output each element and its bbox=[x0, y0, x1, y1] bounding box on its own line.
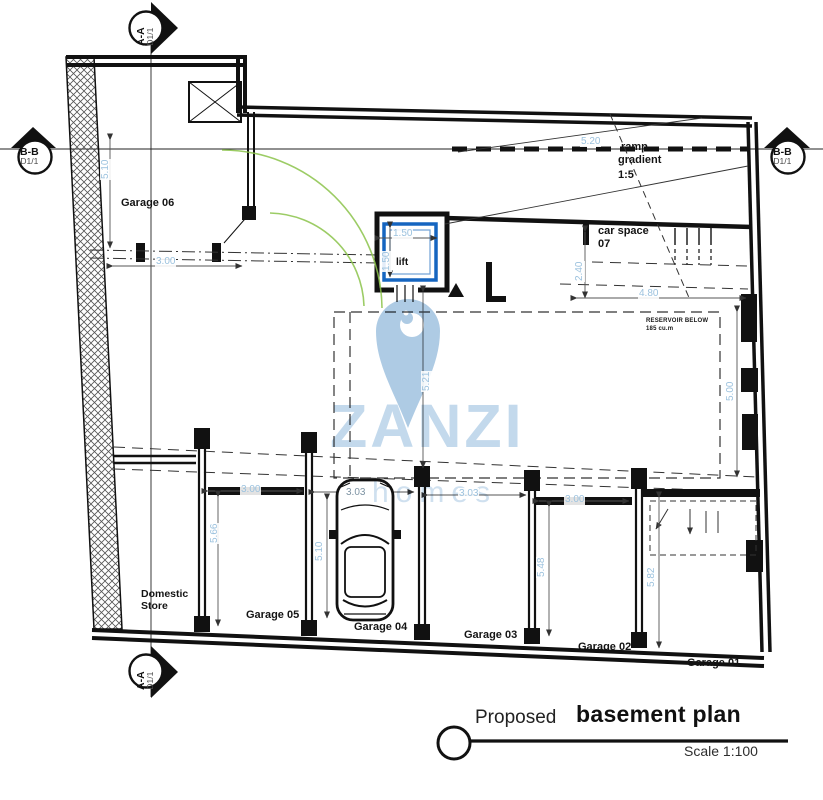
label-garage05: Garage 05 bbox=[246, 610, 299, 622]
dim-car-space-depth: 2.40 bbox=[574, 261, 585, 282]
title-scale: Scale 1:100 bbox=[684, 744, 758, 759]
garage01-stair-symbol bbox=[650, 501, 756, 555]
dim-garage05-depth: 5.66 bbox=[209, 523, 220, 544]
dim-reservoir-depth: 5.21 bbox=[421, 371, 432, 392]
label-ramp-line1: ramp bbox=[621, 142, 648, 154]
dim-garage01-depth: 5.82 bbox=[646, 567, 657, 588]
turning-arcs bbox=[222, 150, 382, 308]
title-prefix: Proposed bbox=[475, 708, 556, 728]
section-marker-aa-bottom: A-A D1/1 bbox=[136, 671, 155, 690]
direction-triangle-icon bbox=[448, 283, 464, 297]
label-car-space-line2: 07 bbox=[598, 239, 610, 251]
dim-garage06-width: 3.00 bbox=[155, 256, 176, 267]
plan-linework bbox=[0, 0, 823, 800]
section-marker-sheet: D1/1 bbox=[146, 27, 155, 46]
dim-garage02-width: 3.00 bbox=[564, 494, 585, 505]
section-marker-bb-right: B-B D1/1 bbox=[773, 147, 792, 166]
label-garage06: Garage 06 bbox=[121, 198, 174, 210]
label-ramp-line2: gradient bbox=[618, 155, 661, 167]
reservoir-outline bbox=[334, 312, 720, 478]
label-lift: lift bbox=[396, 258, 408, 269]
label-garage01: Garage 01 bbox=[687, 658, 740, 670]
dim-lift-width: 1.50 bbox=[392, 228, 413, 239]
label-ramp-line3: 1:5 bbox=[618, 170, 634, 182]
basement-plan-sheet: ZANZI homes Garage 06 Domestic Store Gar… bbox=[0, 0, 823, 800]
dim-garage02-depth: 5.48 bbox=[536, 557, 547, 578]
dim-lift-depth: 1.50 bbox=[381, 251, 392, 272]
label-reservoir-line2: 185 cu.m bbox=[646, 326, 673, 333]
section-lines bbox=[0, 26, 823, 697]
dim-reservoir-width: 4.80 bbox=[638, 288, 659, 299]
section-marker-shapes bbox=[11, 2, 810, 698]
domestic-store-walls bbox=[114, 456, 196, 463]
label-reservoir-line1: RESERVOIR BELOW bbox=[646, 318, 708, 325]
dim-garage03-width: 3.03 bbox=[458, 488, 479, 499]
aisle-lines bbox=[114, 447, 758, 492]
dim-ramp-length: 5.20 bbox=[580, 136, 601, 147]
dim-right-side: 5.00 bbox=[725, 381, 736, 402]
label-domestic-store-line1: Domestic bbox=[141, 589, 188, 600]
dim-garage05-width: 3.00 bbox=[240, 484, 261, 495]
label-car-space-line1: car space bbox=[598, 226, 649, 238]
section-marker-aa-top: A-A D1/1 bbox=[136, 27, 155, 46]
car-top-view bbox=[329, 480, 401, 620]
section-marker-sheet: D1/1 bbox=[773, 157, 792, 166]
dim-garage04-width: 3.03 bbox=[345, 487, 366, 498]
label-domestic-store-line2: Store bbox=[141, 601, 168, 612]
page-title: basement plan bbox=[576, 702, 741, 726]
label-garage02: Garage 02 bbox=[578, 642, 631, 654]
dim-garage06-depth: 5.10 bbox=[100, 159, 111, 180]
section-marker-bb-left: B-B D1/1 bbox=[20, 147, 39, 166]
label-garage04: Garage 04 bbox=[354, 622, 407, 634]
section-marker-sheet: D1/1 bbox=[146, 671, 155, 690]
dim-garage04-depth: 5.10 bbox=[314, 541, 325, 562]
label-garage03: Garage 03 bbox=[464, 630, 517, 642]
section-marker-sheet: D1/1 bbox=[20, 157, 39, 166]
